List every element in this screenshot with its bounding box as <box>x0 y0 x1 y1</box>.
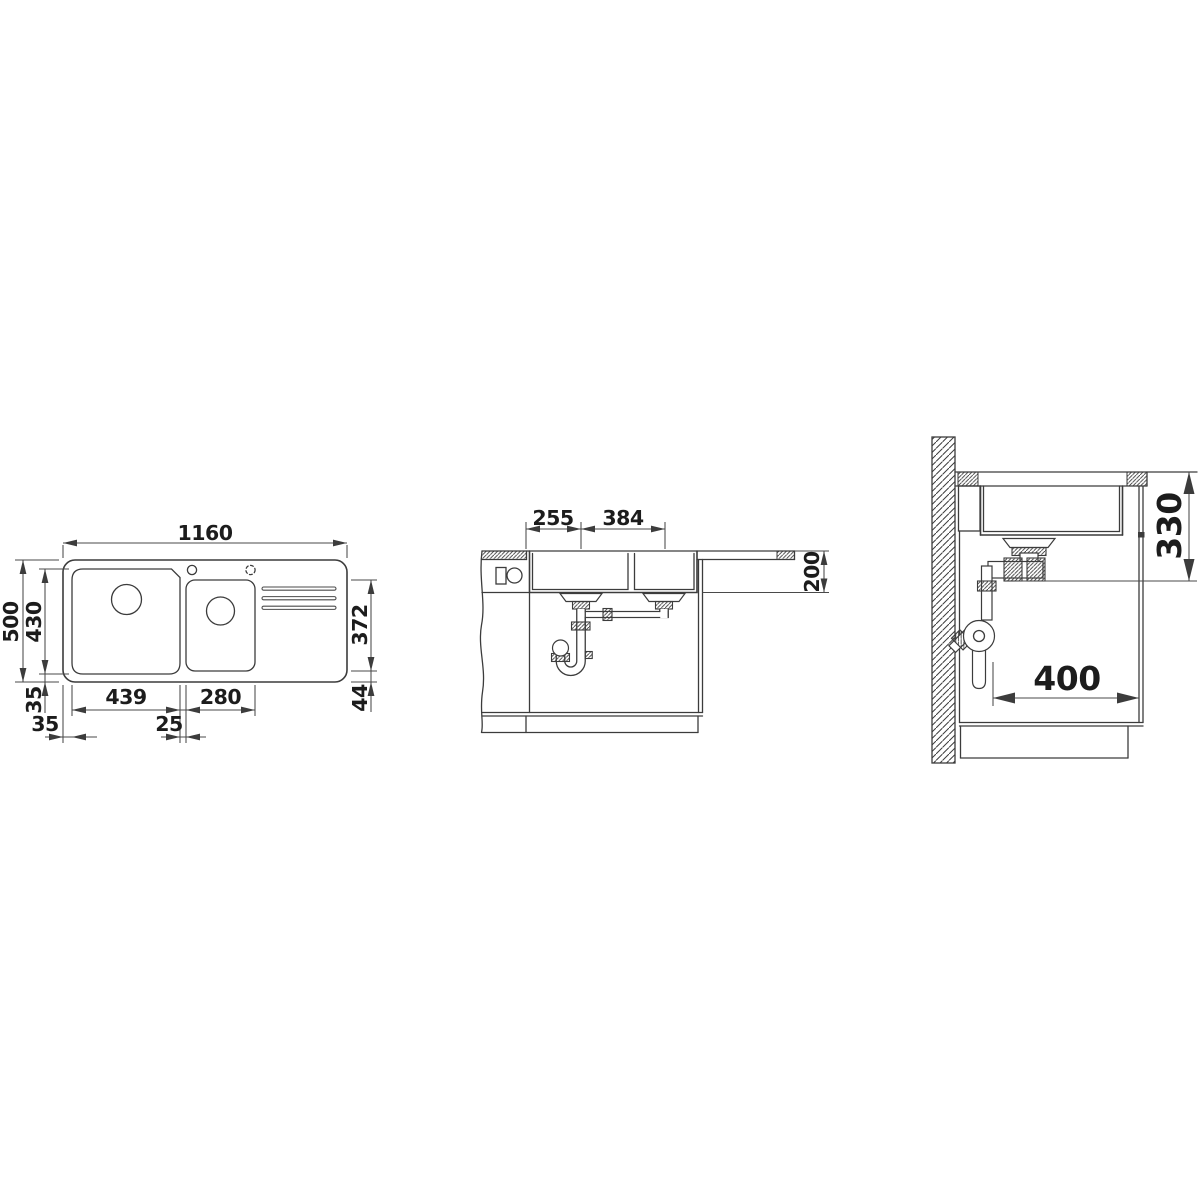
dim-main-bowl-width-label: 439 <box>105 685 146 709</box>
technical-drawing: 1160 500 430 35 <box>0 0 1200 1200</box>
dim-bowl-depth-front-label: 200 <box>800 551 824 593</box>
dim-half-bowl-width-label: 280 <box>200 685 242 709</box>
dim-bowl-depth-label: 430 <box>22 601 46 643</box>
panel-fixing-detail <box>1138 532 1145 538</box>
dim-rear-inset-label: 35 <box>22 686 46 714</box>
dim-cabinet-clearance-label: 400 <box>1033 659 1100 698</box>
dim-drain-spacing-label: 384 <box>602 506 644 530</box>
dim-drain-offset-label: 255 <box>532 506 573 530</box>
dim-side-inset-label: 35 <box>31 712 59 736</box>
dim-half-bowl-depth-label: 372 <box>348 604 372 645</box>
dim-bowl-gap-label: 25 <box>155 712 183 736</box>
wall-section <box>932 437 955 763</box>
sink-technical-drawing-page: 1160 500 430 35 <box>0 0 1200 1200</box>
dim-overall-depth-label: 500 <box>0 601 23 643</box>
dim-overall-width-label: 1160 <box>177 521 232 545</box>
dim-half-bowl-inset-label: 44 <box>348 684 372 712</box>
dim-installation-depth-label: 330 <box>1150 492 1189 559</box>
